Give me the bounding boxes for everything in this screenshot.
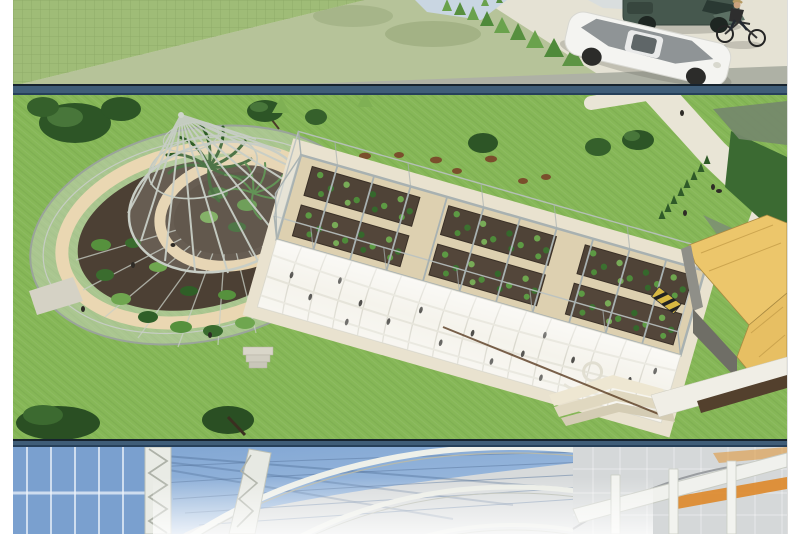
navy-divider-bar <box>13 84 787 95</box>
navy-divider-bar <box>13 439 787 447</box>
street-view-render <box>13 0 787 84</box>
render-board <box>13 0 788 534</box>
tree-shadow <box>385 21 481 47</box>
glazed-side-wall <box>13 447 145 534</box>
interior-render <box>13 447 787 534</box>
column <box>727 461 736 534</box>
aerial-site-render <box>13 95 787 439</box>
presentation-board-page <box>0 0 800 534</box>
middle-panel-aerial-view <box>13 95 787 439</box>
column <box>669 469 678 534</box>
bottom-panel-interior-view <box>13 447 787 534</box>
top-panel-street-view <box>13 0 787 84</box>
light-haze <box>153 477 653 534</box>
